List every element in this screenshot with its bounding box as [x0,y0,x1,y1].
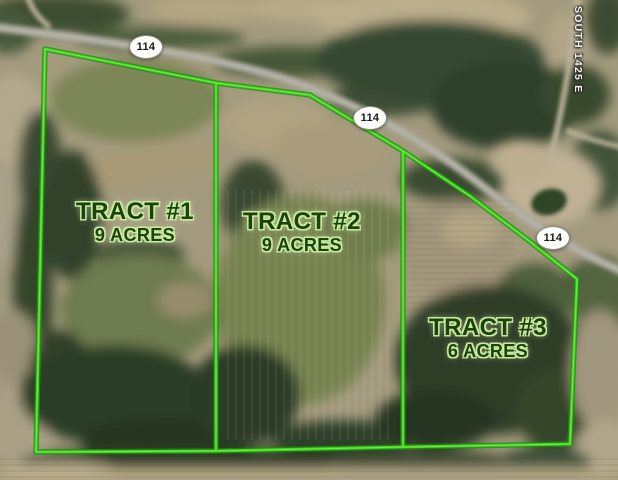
satellite-imagery-layer [0,0,618,480]
route-114-badge-middle: 114 [353,106,387,130]
route-114-badge-east: 114 [536,226,570,250]
road-name-south-1425-e: SOUTH 1425 E [572,6,584,93]
aerial-parcel-map: TRACT #1 9 ACRES TRACT #2 9 ACRES TRACT … [0,0,618,480]
route-114-badge-west: 114 [129,35,163,59]
